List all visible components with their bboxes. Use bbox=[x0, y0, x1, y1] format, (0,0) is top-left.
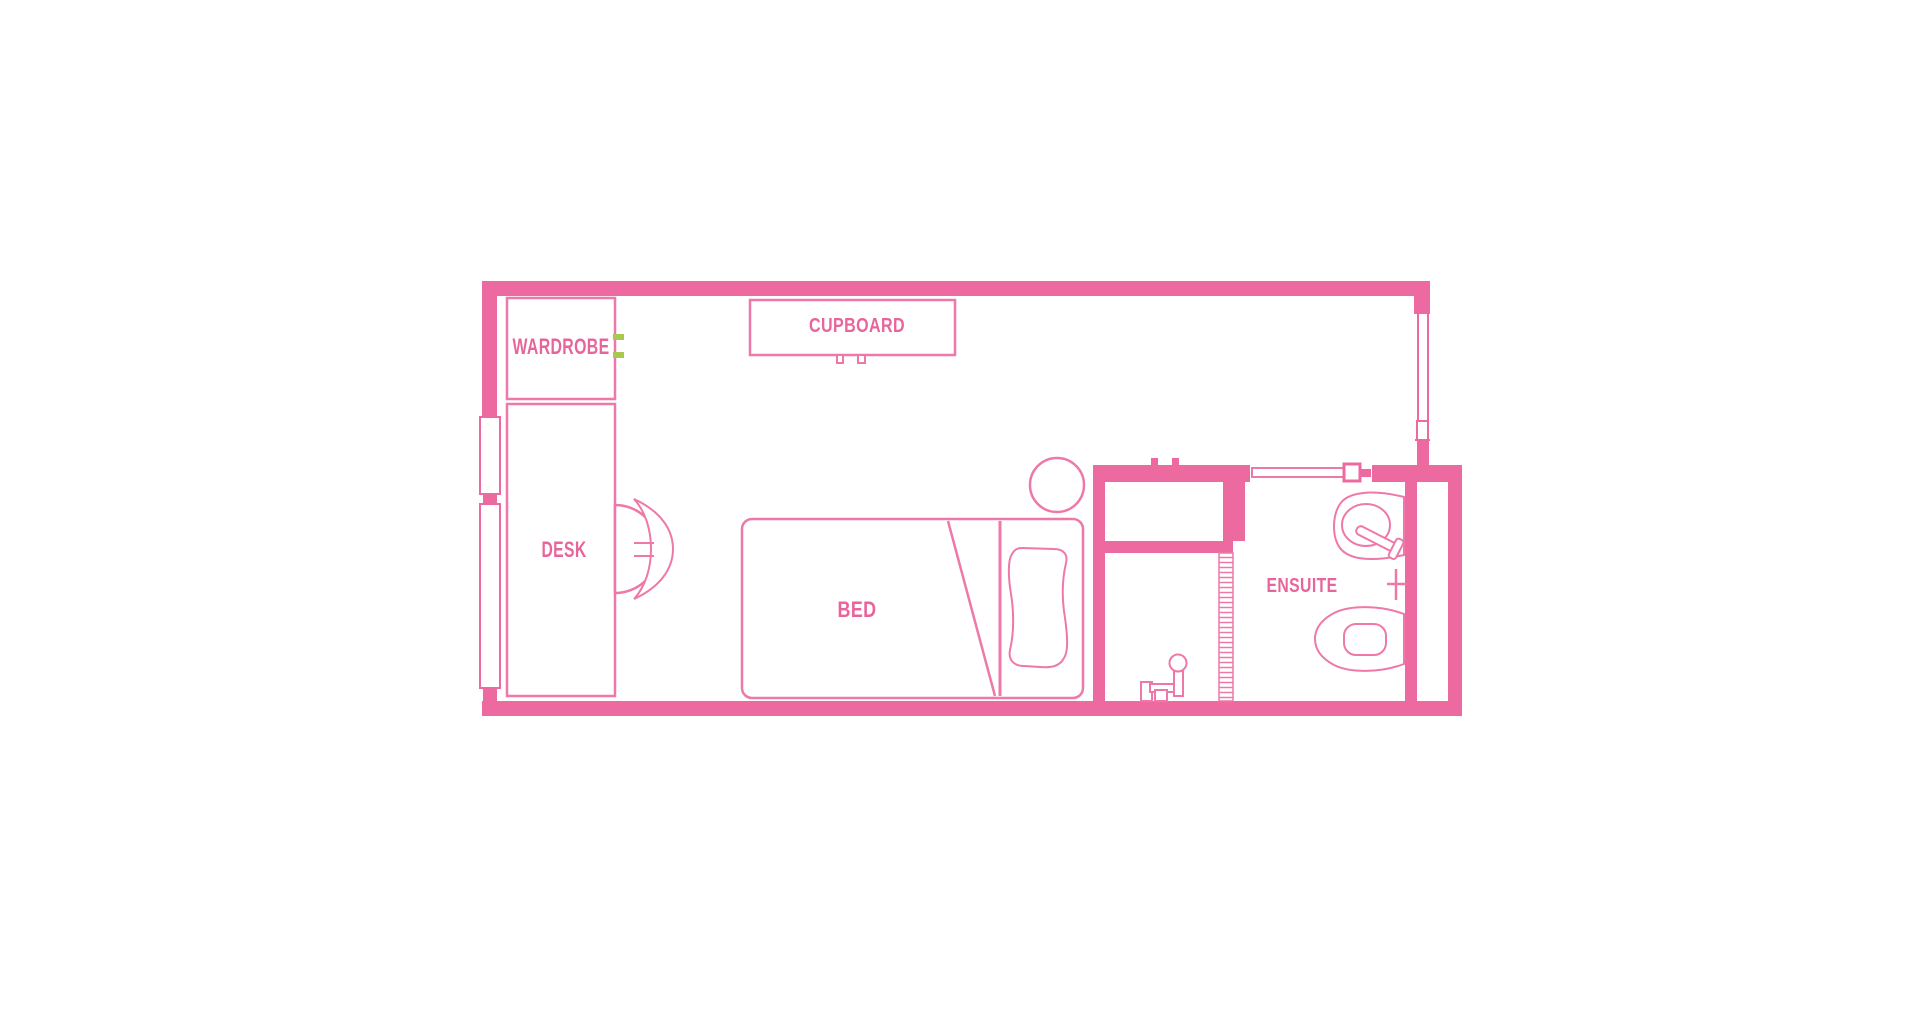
door-tip bbox=[1361, 469, 1371, 477]
right-outer-wall bbox=[1448, 482, 1462, 701]
left-wall-lower-stub bbox=[483, 687, 497, 701]
top-wall bbox=[482, 281, 1430, 296]
desk-label: DESK bbox=[542, 537, 587, 562]
shower-riser-stem bbox=[1174, 671, 1183, 696]
shower-tray-right-wall bbox=[1223, 465, 1245, 541]
cupboard-leg-right bbox=[858, 355, 865, 363]
shower-tray-bottom-wall bbox=[1105, 541, 1233, 553]
toilet-roll-holder bbox=[1387, 569, 1407, 600]
shower-screen-hatched bbox=[1219, 553, 1233, 701]
bottom-wall bbox=[482, 701, 1462, 716]
pipe-tick-left bbox=[1151, 458, 1158, 466]
pipe-tick-right bbox=[1172, 458, 1179, 466]
bedside-stool bbox=[1030, 458, 1084, 512]
left-window-upper bbox=[480, 417, 500, 494]
right-window bbox=[1418, 313, 1428, 421]
ensuite-label: ENSUITE bbox=[1267, 575, 1338, 597]
shaft-left-wall bbox=[1405, 482, 1417, 701]
toilet bbox=[1315, 607, 1404, 671]
shower-valve-block-mid bbox=[1155, 690, 1167, 701]
pillow bbox=[1009, 548, 1067, 667]
cupboard-label: CUPBOARD bbox=[809, 315, 905, 337]
ensuite-top-wall-right bbox=[1372, 465, 1462, 482]
left-window-lower bbox=[480, 504, 500, 688]
right-wall-upper-stub bbox=[1414, 281, 1430, 314]
right-window-end-bracket bbox=[1415, 420, 1430, 441]
shower-fixture bbox=[1141, 655, 1187, 702]
bed-label: BED bbox=[838, 597, 877, 622]
right-wall-lower-stub bbox=[1417, 441, 1429, 467]
chair bbox=[615, 499, 673, 599]
door-leaf bbox=[1252, 468, 1344, 477]
floor-plan: WARDROBE DESK CUPBOARD BED ENSUITE bbox=[0, 0, 1920, 1019]
bed bbox=[742, 519, 1083, 698]
shower-head bbox=[1170, 655, 1187, 672]
wardrobe-green-tick-bottom bbox=[613, 352, 624, 358]
door-handle bbox=[1344, 464, 1360, 481]
wardrobe-label: WARDROBE bbox=[513, 334, 610, 359]
wardrobe-green-tick-top bbox=[613, 334, 624, 340]
bathroom-left-wall bbox=[1093, 465, 1105, 701]
toilet-seat bbox=[1344, 624, 1386, 655]
cupboard-leg-left bbox=[837, 355, 843, 363]
sink bbox=[1334, 493, 1404, 560]
left-wall-upper bbox=[482, 281, 497, 417]
sliding-door bbox=[1252, 464, 1371, 481]
